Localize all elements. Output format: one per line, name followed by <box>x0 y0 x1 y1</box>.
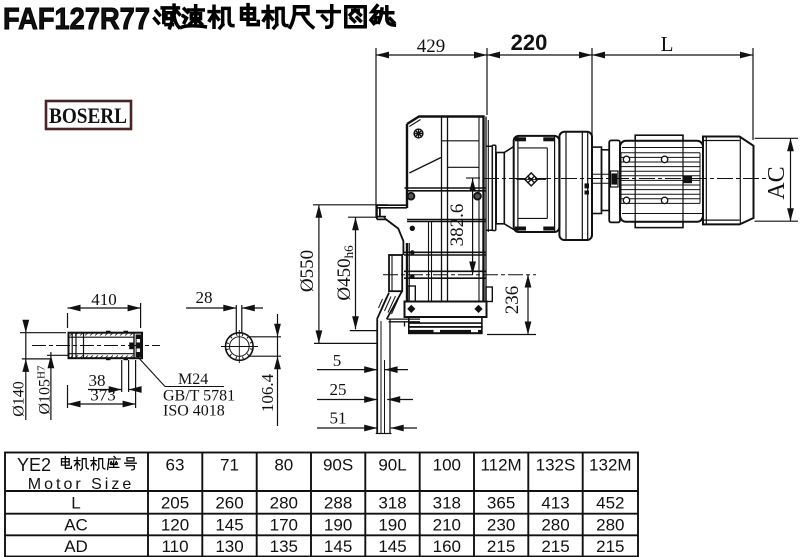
svg-text:Ø550: Ø550 <box>297 250 318 292</box>
svg-text:160: 160 <box>433 537 461 556</box>
svg-text:132M: 132M <box>589 456 632 475</box>
svg-text:429: 429 <box>417 36 446 57</box>
svg-text:280: 280 <box>596 516 624 535</box>
svg-text:Motor Size: Motor Size <box>28 476 134 493</box>
svg-text:51: 51 <box>330 409 347 428</box>
svg-text:410: 410 <box>91 290 117 309</box>
svg-text:L: L <box>661 32 674 56</box>
svg-text:452: 452 <box>596 494 624 513</box>
svg-text:132S: 132S <box>536 456 576 475</box>
svg-text:145: 145 <box>378 537 406 556</box>
svg-text:145: 145 <box>215 516 243 535</box>
svg-text:63: 63 <box>166 456 185 475</box>
svg-text:170: 170 <box>270 516 298 535</box>
svg-text:106.4: 106.4 <box>258 373 277 412</box>
svg-text:Ø450h6: Ø450h6 <box>334 245 356 301</box>
svg-text:100: 100 <box>433 456 461 475</box>
svg-text:373: 373 <box>90 386 116 405</box>
svg-text:145: 145 <box>324 537 352 556</box>
svg-text:365: 365 <box>487 494 515 513</box>
svg-text:236: 236 <box>502 286 523 315</box>
svg-text:71: 71 <box>220 456 239 475</box>
svg-text:130: 130 <box>215 537 243 556</box>
svg-text:90L: 90L <box>378 456 406 475</box>
svg-text:L: L <box>71 494 80 513</box>
svg-text:112M: 112M <box>480 456 521 475</box>
svg-text:288: 288 <box>324 494 352 513</box>
svg-text:220: 220 <box>511 30 548 55</box>
svg-text:5: 5 <box>333 351 342 370</box>
svg-text:318: 318 <box>433 494 461 513</box>
svg-text:190: 190 <box>324 516 352 535</box>
svg-text:260: 260 <box>215 494 243 513</box>
svg-text:135: 135 <box>270 537 298 556</box>
svg-text:Ø140: Ø140 <box>11 381 28 417</box>
svg-text:120: 120 <box>161 516 189 535</box>
svg-text:25: 25 <box>330 380 347 399</box>
svg-text:210: 210 <box>433 516 461 535</box>
svg-text:AC: AC <box>64 516 88 535</box>
svg-text:215: 215 <box>541 537 569 556</box>
svg-text:413: 413 <box>541 494 569 513</box>
svg-text:80: 80 <box>274 456 293 475</box>
svg-text:382.6: 382.6 <box>447 204 468 247</box>
svg-text:YE2: YE2 <box>17 455 51 475</box>
svg-text:M24: M24 <box>178 371 208 388</box>
svg-text:215: 215 <box>596 537 624 556</box>
svg-text:ISO 4018: ISO 4018 <box>163 403 225 420</box>
svg-text:AC: AC <box>764 166 790 199</box>
svg-text:190: 190 <box>378 516 406 535</box>
svg-text:90S: 90S <box>323 456 353 475</box>
svg-text:280: 280 <box>270 494 298 513</box>
svg-text:230: 230 <box>487 516 515 535</box>
svg-text:AD: AD <box>64 537 88 556</box>
svg-text:FAF127R77: FAF127R77 <box>3 1 150 36</box>
svg-text:215: 215 <box>487 537 515 556</box>
svg-text:28: 28 <box>196 288 213 307</box>
svg-text:318: 318 <box>378 494 406 513</box>
svg-text:205: 205 <box>161 494 189 513</box>
svg-text:110: 110 <box>161 537 188 556</box>
svg-text:BOSERL: BOSERL <box>49 103 127 128</box>
svg-text:280: 280 <box>541 516 569 535</box>
